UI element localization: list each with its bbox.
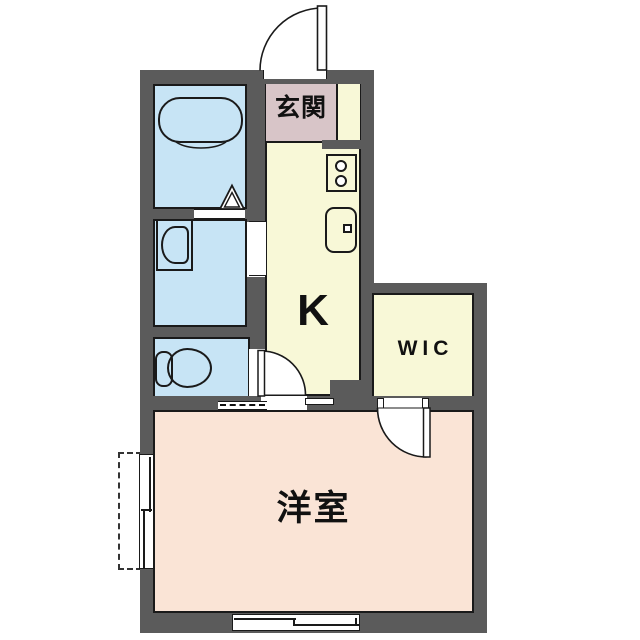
wash-basin-bowl [161,226,189,264]
wic-door-jamb [377,398,384,410]
window-pane [149,457,151,512]
shoe-cabinet [337,78,361,141]
window-tick [293,618,295,626]
stove-burner-icon [335,175,347,187]
bathtub [158,97,243,143]
wall-vertical-lower [247,277,265,337]
sliding-window-bottom [232,614,360,631]
stove-burner-icon [335,160,347,172]
wall-wic-top [361,283,487,293]
vent-strip [218,401,267,410]
genkan-label: 玄関 [265,95,337,123]
window-tick [141,509,152,511]
wall-kitchen-corner [330,380,361,396]
window-pane [234,618,296,620]
wall-right-upper [361,70,374,293]
sliding-window-left [139,454,154,569]
toilet-door-gap [249,349,265,396]
floor-plan: 玄関 K WIC 洋室 [0,0,640,640]
window-tick [355,618,357,626]
sink-faucet-icon [343,224,352,233]
window-pane [143,510,145,568]
kitchen-door-threshold [305,398,334,405]
kitchen-label: K [265,287,361,335]
wall-kitchen-wic [361,293,372,398]
washroom-sliding-door [249,221,266,276]
entrance-opening [263,70,327,79]
wall-vertical-upper [247,70,265,222]
western-room-label: 洋室 [153,490,474,529]
wic-label: WIC [372,337,474,360]
entrance-door-leaf [318,6,327,70]
wall-washroom-toilet [140,327,251,337]
wic-door-jamb [422,398,429,410]
wall-right [474,283,487,633]
entrance-door-arc [260,8,323,71]
wall-genkan-stub [322,140,361,149]
window-pane [293,624,359,626]
bathroom-door-threshold [194,209,245,219]
kitchen-sink [325,207,357,253]
kitchen-door-opening [261,396,307,410]
vent-dashed-line [220,404,265,406]
